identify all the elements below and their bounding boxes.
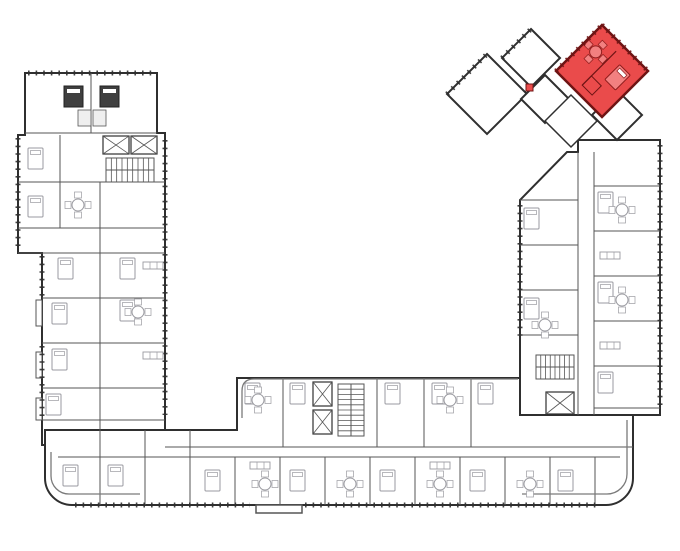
- bed-icon: [63, 465, 78, 486]
- bed-icon: [64, 86, 83, 107]
- balcony: [36, 352, 42, 378]
- balcony: [36, 398, 42, 420]
- kitchen-icon: [430, 462, 450, 469]
- bed-icon: [380, 470, 395, 491]
- kitchen-icon: [143, 352, 163, 359]
- kitchen-icon: [143, 262, 163, 269]
- bed-icon: [478, 383, 493, 404]
- bed-icon: [108, 465, 123, 486]
- bed-icon: [52, 303, 67, 324]
- staircase-icon: [106, 158, 154, 182]
- floor-plan-canvas: [0, 0, 680, 551]
- bed-icon: [52, 349, 67, 370]
- elevator-icon: [313, 382, 332, 406]
- elevator-icon: [313, 410, 332, 434]
- elevator-icon: [131, 136, 157, 154]
- bed-icon: [205, 470, 220, 491]
- bathroom: [78, 110, 91, 126]
- balcony: [36, 300, 42, 326]
- bed-icon: [470, 470, 485, 491]
- bed-icon: [524, 298, 539, 319]
- highlight-badge: [526, 84, 533, 91]
- staircase-icon: [338, 384, 364, 436]
- bed-icon: [290, 383, 305, 404]
- bed-icon: [558, 470, 573, 491]
- kitchen-icon: [250, 462, 270, 469]
- bed-icon: [385, 383, 400, 404]
- staircase-icon: [536, 355, 574, 379]
- bed-icon: [524, 208, 539, 229]
- floor-plan-svg: [0, 0, 680, 551]
- kitchen-icon: [600, 342, 620, 349]
- bed-icon: [290, 470, 305, 491]
- bed-icon: [598, 372, 613, 393]
- bed-icon: [100, 86, 119, 107]
- bed-icon: [46, 394, 61, 415]
- bed-icon: [28, 196, 43, 217]
- entrance-porch: [256, 505, 302, 513]
- elevator-icon: [546, 392, 574, 414]
- bed-icon: [120, 258, 135, 279]
- bed-icon: [28, 148, 43, 169]
- elevator-icon: [103, 136, 129, 154]
- bed-icon: [58, 258, 73, 279]
- kitchen-icon: [600, 252, 620, 259]
- bathroom: [93, 110, 106, 126]
